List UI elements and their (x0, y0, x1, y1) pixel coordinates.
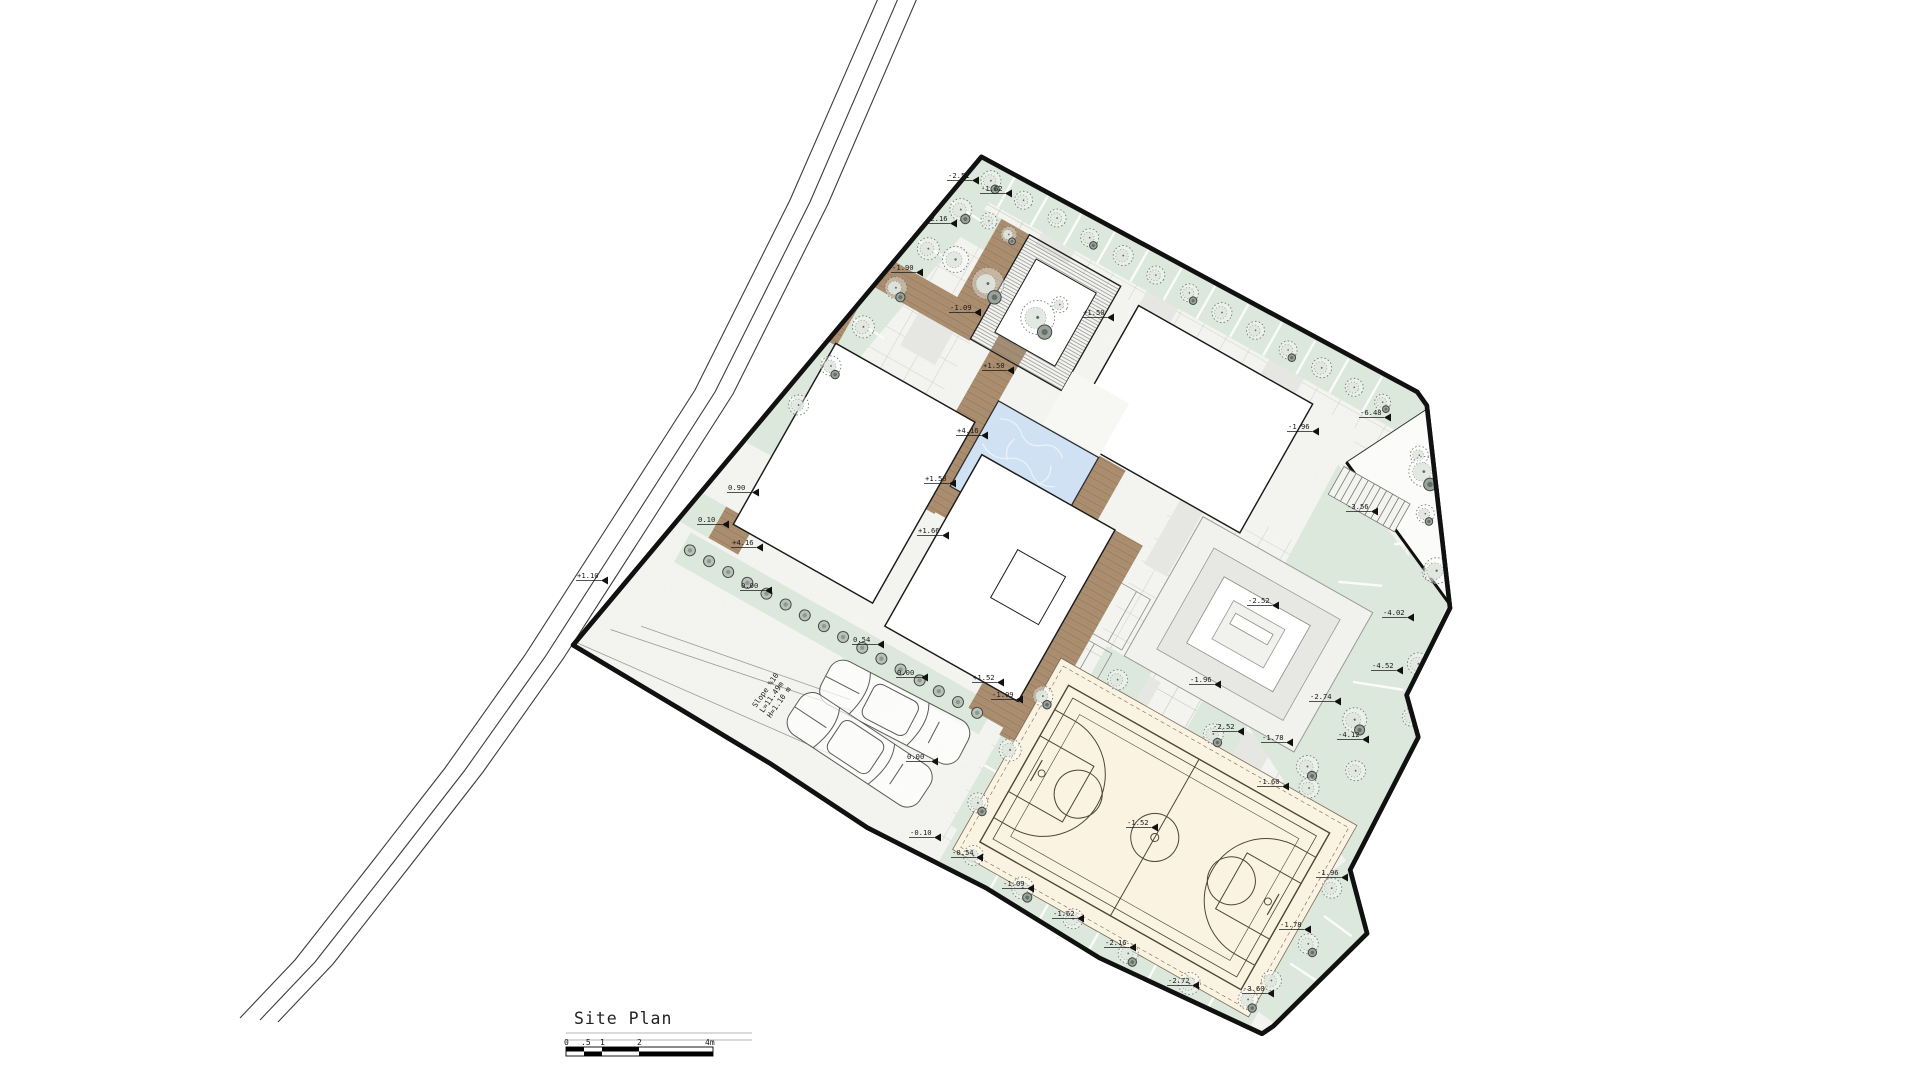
scale-tick-0: 0 (564, 1038, 569, 1047)
elevation-label: -3.60 (1243, 984, 1265, 993)
elevation-label: +1.50 (983, 361, 1005, 370)
elevation-label: -4.52 (1372, 661, 1394, 670)
site-plan-sheet: +1.50+1.50+4.16+1.50+1.660.900.10+4.160.… (0, 0, 1920, 1080)
scale-tick-4m: 4m (705, 1038, 715, 1047)
elevation-label: -1.96 (1190, 675, 1212, 684)
drawing-title: Site Plan (574, 1009, 672, 1028)
elevation-label: -1.60 (1258, 777, 1280, 786)
elevation-label: +1.50 (1083, 308, 1105, 317)
elevation-label: +4.16 (732, 538, 754, 547)
elevation-label: +1.10 (577, 571, 599, 580)
elevation-label: -1.09 (992, 690, 1014, 699)
scale-tick-2: 2 (637, 1038, 642, 1047)
elevation-label: -0.10 (910, 828, 932, 837)
elevation-label: 0.00 (741, 581, 758, 590)
scale-bar: 0 .5 1 2 4m (564, 1038, 715, 1056)
elevation-label: 0.00 (907, 752, 924, 761)
elevation-label: -0.54 (952, 848, 974, 857)
elevation-label: -1.09 (950, 303, 972, 312)
elevation-label: -1.62 (1053, 909, 1075, 918)
elevation-label: -2.52 (1248, 596, 1270, 605)
scale-tick-05: .5 (581, 1038, 591, 1047)
elevation-label: -1.09 (1003, 879, 1025, 888)
elevation-label: -1.52 (1127, 818, 1149, 827)
elevation-label: -1.90 (892, 263, 914, 272)
elevation-label: -4.02 (1383, 608, 1405, 617)
elevation-label: -2.51 (948, 171, 970, 180)
elevation-label: +1.66 (918, 526, 940, 535)
elevation-label: 0.00 (897, 668, 914, 677)
site-plan-svg: +1.50+1.50+4.16+1.50+1.660.900.10+4.160.… (0, 0, 1920, 1080)
elevation-label: 0.90 (728, 483, 745, 492)
elevation-label: -2.16 (1105, 938, 1127, 947)
elevation-label: -2.74 (1310, 692, 1332, 701)
elevation-marker: +1.10 (576, 571, 608, 585)
elevation-label: 0.10 (698, 515, 715, 524)
elevation-label: -1.96 (1288, 422, 1310, 431)
elevation-label: -2.16 (926, 214, 948, 223)
elevation-label: -1.78 (1262, 733, 1284, 742)
elevation-label: 0.54 (853, 635, 870, 644)
site-contents (519, 43, 1657, 1080)
elevation-label: -3.56 (1347, 502, 1369, 511)
scale-tick-1: 1 (600, 1038, 605, 1047)
scale-bar-blocks (566, 1047, 713, 1056)
elevation-label: -4.12 (1338, 730, 1360, 739)
elevation-label: +4.16 (957, 426, 979, 435)
elevation-label: +1.50 (925, 474, 947, 483)
elevation-label: -1.78 (1280, 920, 1302, 929)
elevation-label: -1.96 (1317, 868, 1339, 877)
title-block: Site Plan 0 .5 1 2 4m (564, 1009, 752, 1056)
elevation-label: -2.52 (1213, 722, 1235, 731)
elevation-label: -1.62 (981, 184, 1003, 193)
elevation-label: +1.52 (973, 673, 995, 682)
elevation-label: -6.48 (1360, 408, 1382, 417)
site-plan-rotated-group (519, 43, 1657, 1080)
elevation-label: -2.72 (1168, 976, 1190, 985)
